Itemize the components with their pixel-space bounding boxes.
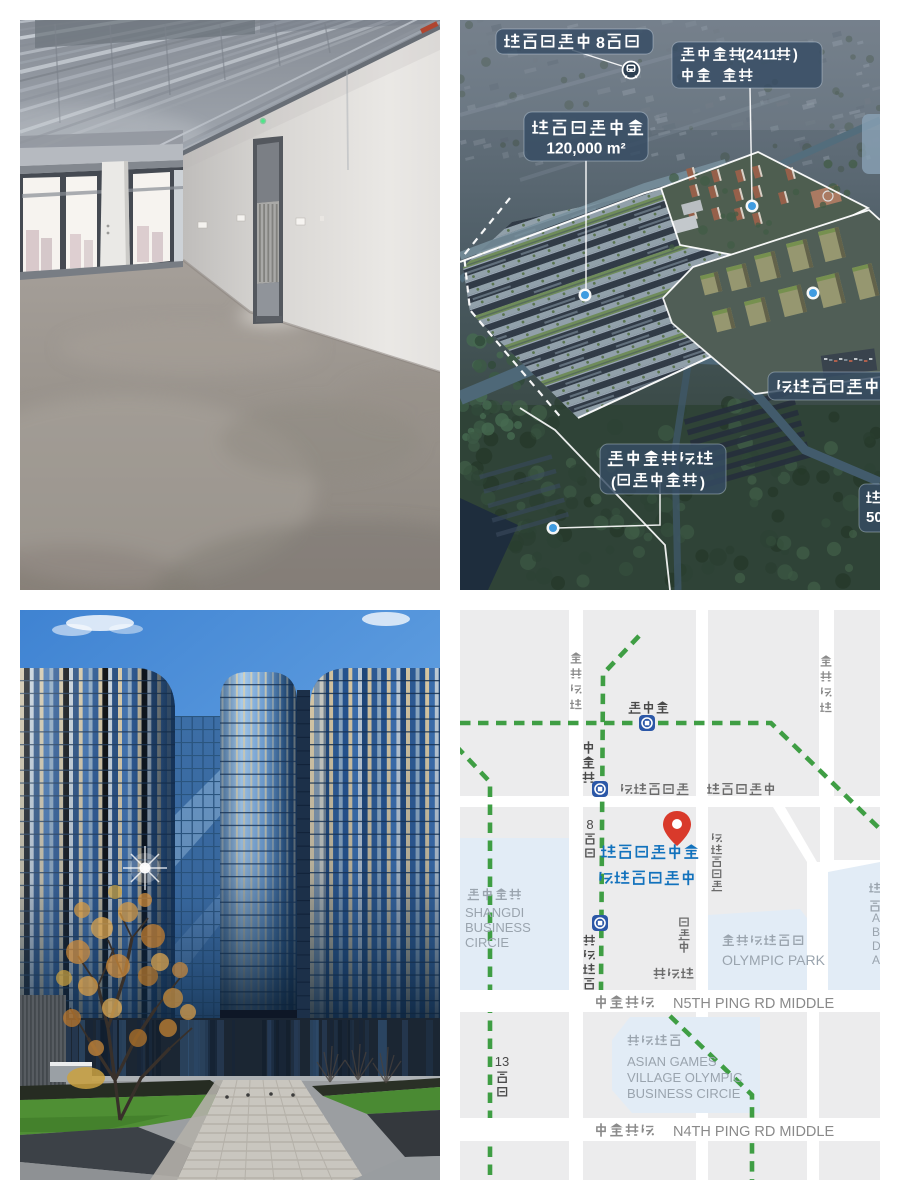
svg-text:A: A (872, 911, 880, 925)
svg-text:(2411: (2411 (741, 48, 777, 64)
svg-text:N5TH PING RD MIDDLE: N5TH PING RD MIDDLE (673, 996, 834, 1012)
svg-text:): ) (700, 475, 705, 492)
svg-text:BUSINESS: BUSINESS (465, 920, 531, 935)
svg-text:8: 8 (596, 35, 605, 52)
svg-text:8: 8 (586, 817, 593, 832)
svg-text:B: B (872, 925, 880, 939)
svg-text:50: 50 (866, 509, 880, 526)
svg-text:ASIAN GAMES: ASIAN GAMES (627, 1054, 717, 1069)
svg-text:VILLAGE OLYMPIC: VILLAGE OLYMPIC (627, 1070, 742, 1085)
svg-text:13: 13 (495, 1054, 509, 1069)
svg-text:CIRCIE: CIRCIE (465, 935, 509, 950)
svg-text:): ) (793, 48, 798, 64)
svg-text:SHANGDI: SHANGDI (465, 905, 524, 920)
svg-text:OLYMPIC PARK: OLYMPIC PARK (722, 952, 826, 968)
svg-text:(: ( (611, 475, 616, 492)
svg-text:120,000 m²: 120,000 m² (546, 141, 625, 158)
svg-text:BUSINESS CIRCIE: BUSINESS CIRCIE (627, 1086, 741, 1101)
svg-text:A: A (872, 953, 880, 967)
svg-text:N4TH PING RD MIDDLE: N4TH PING RD MIDDLE (673, 1124, 834, 1140)
svg-text:D: D (872, 939, 880, 953)
